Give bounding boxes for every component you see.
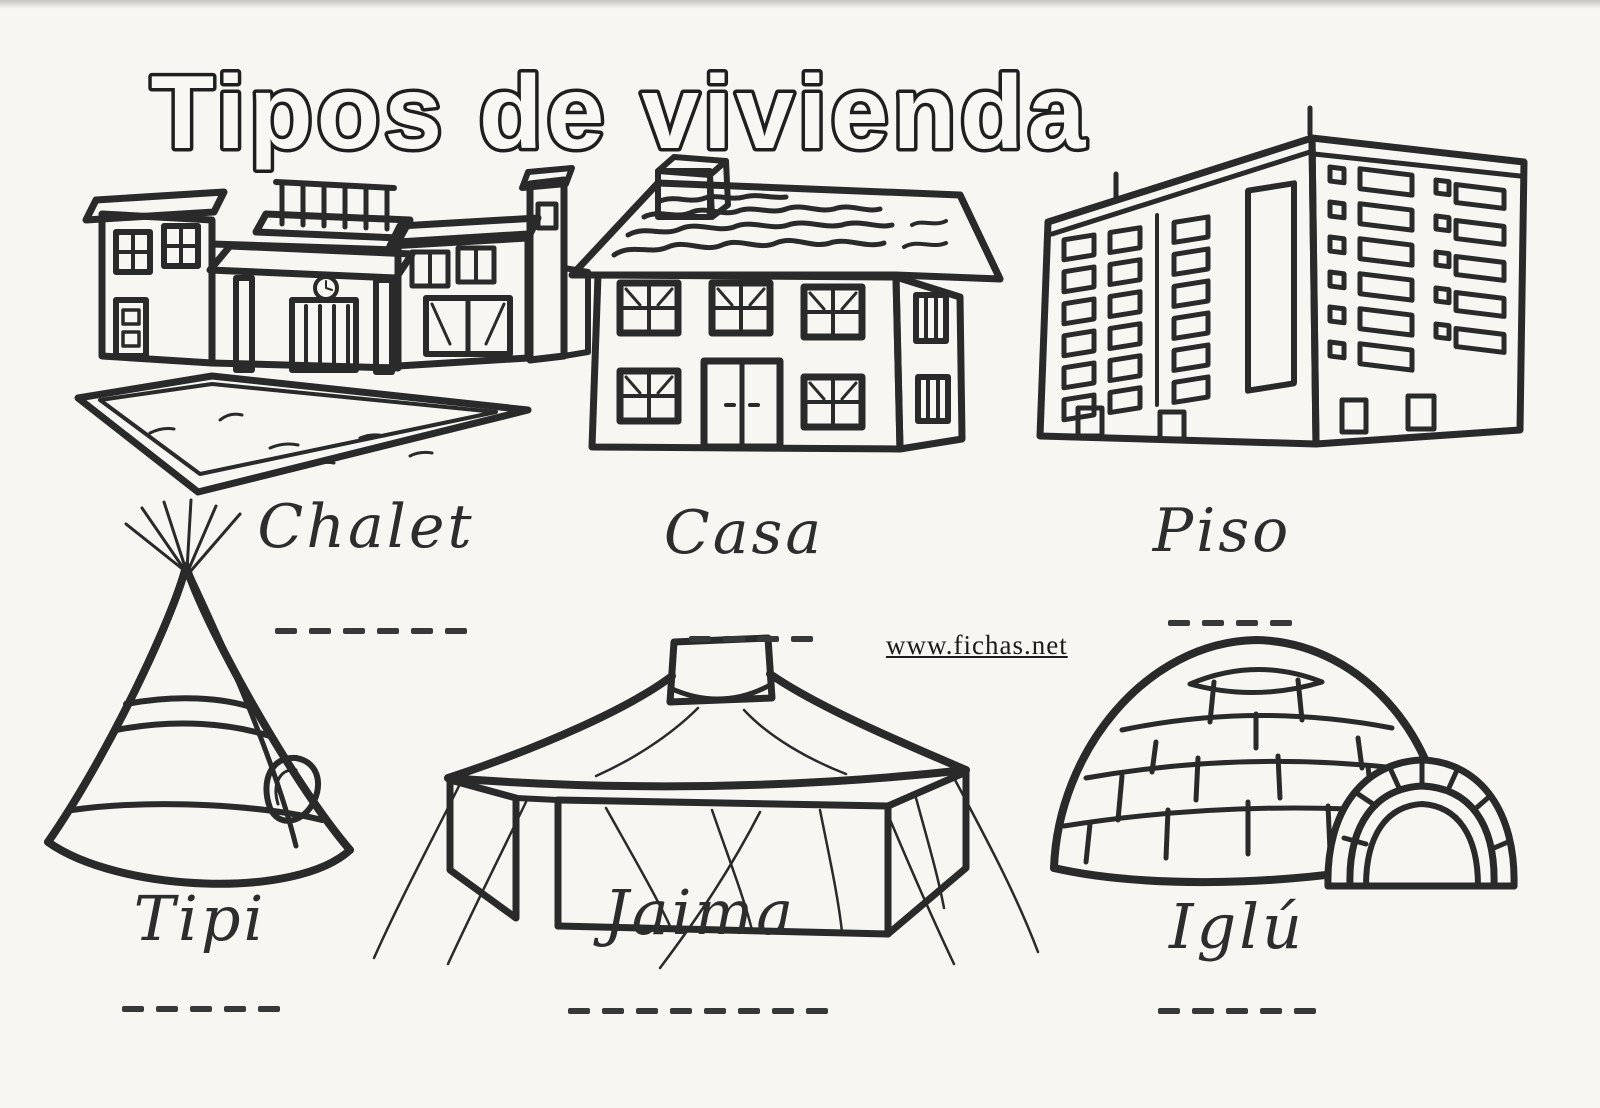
dash-mark — [309, 628, 331, 634]
dash-mark — [1202, 620, 1224, 626]
dash-mark — [190, 1006, 212, 1012]
label-jaima: Jaima — [604, 876, 796, 949]
writing-line-chalet — [275, 628, 467, 634]
dash-mark — [1226, 1008, 1248, 1014]
dash-mark — [411, 628, 433, 634]
label-casa: Casa — [664, 498, 824, 568]
dash-mark — [704, 1008, 726, 1014]
dash-mark — [1270, 620, 1292, 626]
iglu-illustration — [1028, 610, 1518, 900]
label-chalet: Chalet — [257, 492, 474, 562]
label-piso: Piso — [1153, 496, 1291, 566]
dash-mark — [723, 636, 745, 642]
label-tipi: Tipi — [134, 882, 267, 955]
dash-mark — [258, 1006, 280, 1012]
dash-mark — [1158, 1008, 1180, 1014]
dash-mark — [791, 636, 813, 642]
writing-line-iglu — [1158, 1008, 1316, 1014]
label-iglu: Iglú — [1169, 890, 1305, 963]
dash-mark — [343, 628, 365, 634]
writing-line-tipi — [122, 1006, 280, 1012]
dash-mark — [122, 1006, 144, 1012]
worksheet-page: Tipos de vivienda — [0, 0, 1600, 1108]
dash-mark — [772, 1008, 794, 1014]
writing-line-jaima — [568, 1008, 828, 1014]
dash-mark — [738, 1008, 760, 1014]
dash-mark — [568, 1008, 590, 1014]
writing-line-piso — [1168, 620, 1292, 626]
casa-illustration — [562, 155, 1002, 465]
piso-illustration — [1012, 98, 1552, 458]
dash-mark — [636, 1008, 658, 1014]
watermark-url: www.fichas.net — [886, 630, 1068, 661]
dash-mark — [602, 1008, 624, 1014]
dash-mark — [1294, 1008, 1316, 1014]
chalet-illustration — [60, 148, 590, 498]
dash-mark — [806, 1008, 828, 1014]
dash-mark — [1168, 620, 1190, 626]
dash-mark — [757, 636, 779, 642]
dash-mark — [1260, 1008, 1282, 1014]
dash-mark — [224, 1006, 246, 1012]
dash-mark — [275, 628, 297, 634]
dash-mark — [156, 1006, 178, 1012]
dash-mark — [377, 628, 399, 634]
writing-line-casa — [689, 636, 813, 642]
dash-mark — [689, 636, 711, 642]
dash-mark — [670, 1008, 692, 1014]
dash-mark — [1236, 620, 1258, 626]
dash-mark — [1192, 1008, 1214, 1014]
dash-mark — [445, 628, 467, 634]
scan-artifact-top-edge — [0, 0, 1600, 9]
